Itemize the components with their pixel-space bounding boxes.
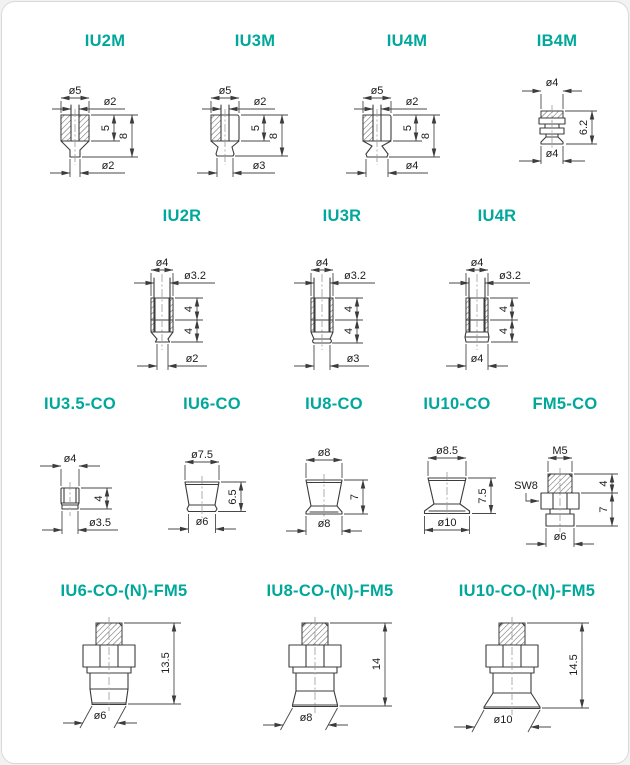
figure-iu2r: IU2R ø4 xyxy=(107,207,257,388)
figure-iu3m: IU3M ø5 xyxy=(180,32,330,203)
dim-bottom-diameter: ø2 xyxy=(102,160,115,172)
dim-height: 6.2 xyxy=(578,120,590,135)
iu4m-drawing: ø5 ø2 5 8 ø4 xyxy=(332,53,482,203)
dim-top-diameter: ø5 xyxy=(371,85,384,97)
dim-top-diameter: ø4 xyxy=(471,257,484,269)
dim-height-upper: 5 xyxy=(100,125,112,131)
dimension-annotations: ø4 ø3.2 4 4 ø3 xyxy=(294,257,375,370)
figure-title: IU10-CO-(N)-FM5 xyxy=(427,582,627,601)
dim-height: 6.5 xyxy=(227,489,239,504)
dim-bottom-diameter: ø8 xyxy=(318,518,331,530)
iu6fm5-drawing: 13.5 ø6 xyxy=(24,603,224,753)
part-outline xyxy=(83,617,135,711)
dim-height-total: 8 xyxy=(118,133,130,139)
part-outline xyxy=(541,468,579,532)
iu8fm5-drawing: 14 ø8 xyxy=(230,603,430,753)
part-outline xyxy=(151,274,173,350)
dim-top-diameter: ø5 xyxy=(69,85,82,97)
dim-height-lower: 7 xyxy=(598,506,610,512)
figure-title: IU3.5-CO xyxy=(20,395,140,414)
dim-bore-diameter: ø2 xyxy=(254,96,267,108)
part-outline xyxy=(465,274,489,350)
figure-ib4m: IB4M ø4 6.2 xyxy=(492,32,622,203)
dim-bottom-diameter: ø10 xyxy=(438,517,457,529)
dim-height: 14 xyxy=(371,658,383,670)
dim-top-diameter: ø5 xyxy=(219,85,232,97)
part-outline xyxy=(484,617,540,715)
dim-bore-diameter: ø3.2 xyxy=(184,270,206,282)
iu35co-drawing: ø4 4 ø3.5 xyxy=(20,416,140,566)
figure-title: IU4R xyxy=(422,207,572,226)
dim-bore-diameter: ø2 xyxy=(104,96,117,108)
part-outline xyxy=(61,105,89,165)
dim-height-upper: 4 xyxy=(598,480,610,486)
iu3r-drawing: ø4 ø3.2 4 4 ø3 xyxy=(267,228,417,388)
dim-top-diameter: ø4 xyxy=(546,77,559,89)
iu10fm5-drawing: 14.5 ø10 xyxy=(427,603,627,753)
dim-bore-diameter: ø3.2 xyxy=(344,270,366,282)
dim-top-diameter: ø4 xyxy=(64,453,77,465)
dim-bottom-diameter: ø3 xyxy=(347,353,360,365)
figure-title: IU8-CO xyxy=(274,395,394,414)
iu6co-drawing: ø7.5 6.5 ø6 xyxy=(152,416,272,566)
iu3m-drawing: ø5 ø2 5 8 ø3 xyxy=(180,53,330,203)
dim-bottom-diameter: ø3 xyxy=(253,160,266,172)
dim-bore-diameter: ø2 xyxy=(406,96,419,108)
figure-iu8co: IU8-CO ø8 7 ø8 xyxy=(274,395,394,566)
figure-title: IU8-CO-(N)-FM5 xyxy=(230,582,430,601)
dim-bottom-diameter: ø3.5 xyxy=(89,517,111,529)
dim-height-lower: 4 xyxy=(498,328,510,334)
datasheet-card: IU2M ø5 ø2 xyxy=(1,1,629,764)
dim-bottom-diameter: ø4 xyxy=(406,160,419,172)
part-outline xyxy=(185,476,219,518)
figure-title: IB4M xyxy=(492,32,622,51)
dim-height-upper: 5 xyxy=(250,125,262,131)
part-outline xyxy=(61,482,79,516)
ib4m-drawing: ø4 6.2 ø4 xyxy=(492,53,622,203)
figure-title: IU3M xyxy=(180,32,330,51)
figure-fm5co: FM5-CO M5 SW8 xyxy=(500,395,629,566)
dim-height-total: 8 xyxy=(268,133,280,139)
part-outline xyxy=(363,105,391,165)
dimension-annotations: ø5 ø2 5 8 ø4 xyxy=(346,85,440,177)
dim-bottom-diameter: ø6 xyxy=(196,516,209,528)
dim-bottom-diameter: ø4 xyxy=(471,353,484,365)
figure-iu6co: IU6-CO ø7.5 6.5 ø6 xyxy=(152,395,272,566)
dim-height-upper: 4 xyxy=(498,306,510,312)
dim-height: 7.5 xyxy=(477,488,489,503)
dim-top-diameter: ø8 xyxy=(318,447,331,459)
dim-top-diameter: ø7.5 xyxy=(191,449,213,461)
figure-title: IU3R xyxy=(267,207,417,226)
figure-title: IU2R xyxy=(107,207,257,226)
figure-title: IU6-CO xyxy=(152,395,272,414)
part-outline xyxy=(425,472,470,520)
dim-bottom-diameter: ø8 xyxy=(300,712,313,724)
iu8co-drawing: ø8 7 ø8 xyxy=(274,416,394,566)
part-outline xyxy=(539,105,565,150)
dim-bottom-diameter: ø6 xyxy=(554,531,567,543)
dim-height-upper: 5 xyxy=(402,125,414,131)
dim-height: 13.5 xyxy=(160,652,172,673)
part-outline xyxy=(289,617,341,713)
dim-bottom-diameter: ø4 xyxy=(546,148,559,160)
iu4r-drawing: ø4 ø3.2 4 4 ø4 xyxy=(422,228,572,388)
figure-title: IU4M xyxy=(332,32,482,51)
iu2m-drawing: ø5 ø2 5 8 ø2 xyxy=(30,53,180,203)
figure-iu4m: IU4M ø5 xyxy=(332,32,482,203)
dim-height-lower: 4 xyxy=(183,328,195,334)
figure-title: FM5-CO xyxy=(500,395,629,414)
dim-height-upper: 4 xyxy=(183,306,195,312)
figure-iu6fm5: IU6-CO-(N)-FM5 13.5 xyxy=(24,582,224,753)
dim-wrench-flat: SW8 xyxy=(514,480,538,492)
figure-iu35co: IU3.5-CO ø4 4 xyxy=(20,395,140,566)
figure-title: IU2M xyxy=(30,32,180,51)
figure-iu3r: IU3R ø4 ø3.2 xyxy=(267,207,417,388)
fm5co-drawing: M5 SW8 4 7 ø6 xyxy=(500,416,629,566)
dim-bottom-diameter: ø10 xyxy=(494,714,513,726)
dim-bore-diameter: ø3.2 xyxy=(499,270,521,282)
dim-top-diameter: ø4 xyxy=(156,257,169,269)
dim-height-upper: 4 xyxy=(343,306,355,312)
figure-iu8fm5: IU8-CO-(N)-FM5 14 xyxy=(230,582,430,753)
part-outline xyxy=(311,274,333,350)
figure-iu10fm5: IU10-CO-(N)-FM5 14.5 xyxy=(427,582,627,753)
dim-height-lower: 4 xyxy=(343,328,355,334)
figure-title: IU6-CO-(N)-FM5 xyxy=(24,582,224,601)
dim-bottom-diameter: ø2 xyxy=(186,353,199,365)
part-outline xyxy=(306,474,342,520)
dim-height-total: 8 xyxy=(420,133,432,139)
dim-top-diameter: ø4 xyxy=(316,257,329,269)
dim-bottom-diameter: ø6 xyxy=(94,710,107,722)
dim-top-diameter: ø8.5 xyxy=(436,445,458,457)
dimension-annotations: ø4 ø3.2 4 4 ø2 xyxy=(134,257,215,370)
iu2r-drawing: ø4 ø3.2 4 4 ø2 xyxy=(107,228,257,388)
part-outline xyxy=(211,105,239,165)
dim-height: 4 xyxy=(93,495,105,501)
figure-iu4r: IU4R ø4 ø3.2 xyxy=(422,207,572,388)
figure-iu2m: IU2M ø5 ø2 xyxy=(30,32,180,203)
dim-thread: M5 xyxy=(552,445,567,457)
dim-height: 7 xyxy=(349,494,361,500)
dim-height: 14.5 xyxy=(568,654,580,675)
